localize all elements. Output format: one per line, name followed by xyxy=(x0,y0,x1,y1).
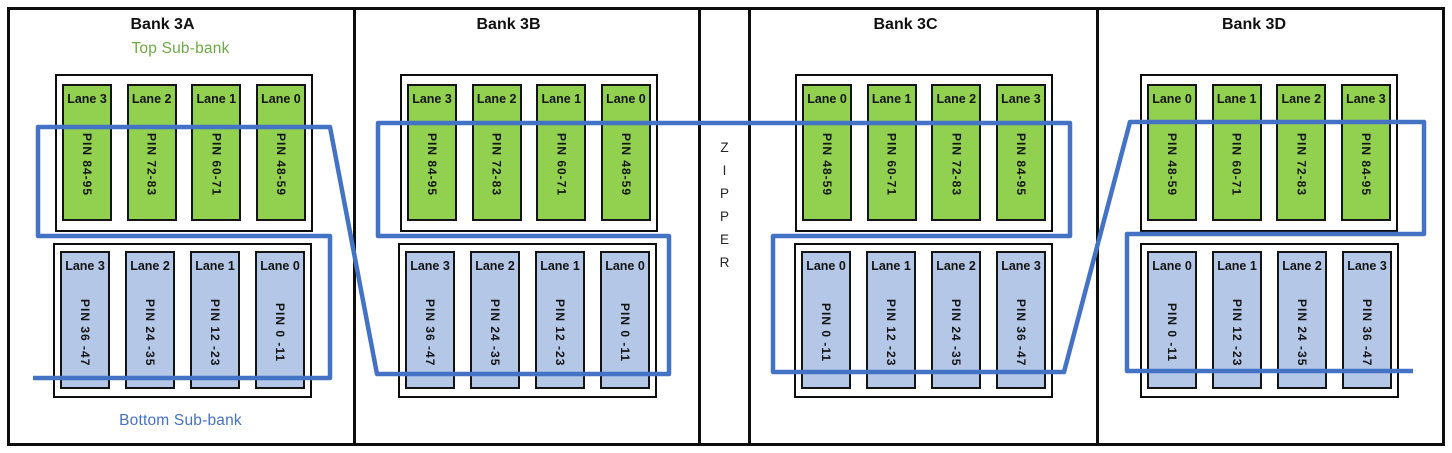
pin-range-wrap: PIN 84-95 xyxy=(409,111,455,219)
pin-range-wrap: PIN 0 -11 xyxy=(602,278,648,387)
lane-box: Lane 3PIN 84-95 xyxy=(407,84,457,221)
bank-3a-title: Bank 3A xyxy=(0,16,335,34)
pin-range-label: PIN 60-71 xyxy=(554,133,568,196)
pin-range-label: PIN 60-71 xyxy=(209,133,223,196)
pin-range-wrap: PIN 24 -35 xyxy=(1279,278,1325,387)
bottom-subbank-label: Bottom Sub-bank xyxy=(8,412,353,430)
bank-3c-bottom-subbank: Lane 0PIN 0 -11Lane 1PIN 12 -23Lane 2PIN… xyxy=(794,243,1053,398)
lane-box: Lane 0PIN 0 -11 xyxy=(600,251,650,389)
pin-range-label: PIN 0 -11 xyxy=(819,303,833,362)
pin-range-wrap: PIN 60-71 xyxy=(538,111,584,219)
pin-range-wrap: PIN 24 -35 xyxy=(933,278,979,387)
pin-range-wrap: PIN 24 -35 xyxy=(472,278,518,387)
lane-label: Lane 0 xyxy=(1149,253,1195,278)
lane-box: Lane 1PIN 12 -23 xyxy=(866,251,916,389)
pin-range-label: PIN 72-83 xyxy=(949,133,963,196)
lane-label: Lane 3 xyxy=(407,253,453,278)
lane-box: Lane 1PIN 60-71 xyxy=(1212,84,1262,221)
pin-range-label: PIN 84-95 xyxy=(1359,133,1373,196)
lane-label: Lane 3 xyxy=(62,253,108,278)
zipper-letter: P xyxy=(720,182,729,205)
lane-box: Lane 3PIN 84-95 xyxy=(62,84,112,221)
pin-range-wrap: PIN 48-59 xyxy=(258,111,304,219)
bank-3b-bottom-subbank: Lane 3PIN 36 -47Lane 2PIN 24 -35Lane 1PI… xyxy=(398,243,657,398)
lane-box: Lane 2PIN 24 -35 xyxy=(470,251,520,389)
pin-range-label: PIN 0 -11 xyxy=(273,303,287,362)
lane-box: Lane 1PIN 12 -23 xyxy=(1212,251,1262,389)
pin-range-label: PIN 36 -47 xyxy=(78,299,92,366)
lane-box: Lane 2PIN 72-83 xyxy=(127,84,177,221)
bank-3c-title: Bank 3C xyxy=(733,16,1078,34)
bank-3d: Bank 3D Lane 0PIN 48-59Lane 1PIN 60-71La… xyxy=(1099,8,1445,445)
lane-label: Lane 1 xyxy=(869,86,915,111)
pin-range-wrap: PIN 72-83 xyxy=(129,111,175,219)
lane-label: Lane 0 xyxy=(803,253,849,278)
pin-range-wrap: PIN 60-71 xyxy=(869,111,915,219)
pin-range-label: PIN 48-59 xyxy=(820,133,834,196)
lane-label: Lane 1 xyxy=(192,253,238,278)
pin-range-wrap: PIN 48-59 xyxy=(603,111,649,219)
pin-range-label: PIN 0 -11 xyxy=(618,303,632,362)
lane-label: Lane 2 xyxy=(127,253,173,278)
pin-range-wrap: PIN 36 -47 xyxy=(62,278,108,387)
pin-range-wrap: PIN 48-59 xyxy=(804,111,850,219)
pin-range-wrap: PIN 0 -11 xyxy=(803,278,849,387)
lane-label: Lane 3 xyxy=(1343,86,1389,111)
lane-label: Lane 2 xyxy=(933,253,979,278)
zipper-letter: R xyxy=(720,251,730,274)
lane-label: Lane 1 xyxy=(1214,86,1260,111)
lane-box: Lane 3PIN 36 -47 xyxy=(996,251,1046,389)
bank-3c: Bank 3C Lane 0PIN 48-59Lane 1PIN 60-71La… xyxy=(751,8,1096,445)
lane-label: Lane 2 xyxy=(129,86,175,111)
pin-range-wrap: PIN 36 -47 xyxy=(407,278,453,387)
pin-range-wrap: PIN 12 -23 xyxy=(1214,278,1260,387)
bank-3c-top-subbank: Lane 0PIN 48-59Lane 1PIN 60-71Lane 2PIN … xyxy=(795,74,1053,232)
lane-label: Lane 0 xyxy=(257,253,303,278)
lane-label: Lane 0 xyxy=(258,86,304,111)
pin-range-label: PIN 24 -35 xyxy=(488,299,502,366)
bank-3a-bottom-subbank: Lane 3PIN 36 -47Lane 2PIN 24 -35Lane 1PI… xyxy=(53,243,312,398)
lane-box: Lane 3PIN 36 -47 xyxy=(1342,251,1392,389)
bank-3b-title: Bank 3B xyxy=(337,16,680,34)
pin-range-wrap: PIN 48-59 xyxy=(1149,111,1195,219)
lane-box: Lane 3PIN 84-95 xyxy=(996,84,1046,221)
pin-range-wrap: PIN 12 -23 xyxy=(537,278,583,387)
pin-range-wrap: PIN 24 -35 xyxy=(127,278,173,387)
pin-range-wrap: PIN 60-71 xyxy=(1214,111,1260,219)
lane-box: Lane 2PIN 24 -35 xyxy=(125,251,175,389)
pin-range-label: PIN 48-59 xyxy=(619,133,633,196)
lane-box: Lane 3PIN 36 -47 xyxy=(405,251,455,389)
pin-range-wrap: PIN 12 -23 xyxy=(192,278,238,387)
bank-3d-bottom-subbank: Lane 0PIN 0 -11Lane 1PIN 12 -23Lane 2PIN… xyxy=(1140,243,1399,398)
lane-box: Lane 1PIN 60-71 xyxy=(867,84,917,221)
pin-range-label: PIN 60-71 xyxy=(885,133,899,196)
lane-label: Lane 2 xyxy=(1279,253,1325,278)
pin-range-label: PIN 24 -35 xyxy=(1295,299,1309,366)
lane-label: Lane 3 xyxy=(998,86,1044,111)
top-subbank-label: Top Sub-bank xyxy=(8,40,353,58)
zipper-column-label: ZIPPER xyxy=(698,136,751,274)
bank-3d-top-subbank: Lane 0PIN 48-59Lane 1PIN 60-71Lane 2PIN … xyxy=(1140,74,1398,232)
lane-box: Lane 2PIN 72-83 xyxy=(472,84,522,221)
zipper-letter: I xyxy=(723,159,727,182)
pin-range-label: PIN 12 -23 xyxy=(1230,299,1244,366)
pin-range-label: PIN 12 -23 xyxy=(884,299,898,366)
pin-range-label: PIN 12 -23 xyxy=(553,299,567,366)
pin-range-wrap: PIN 36 -47 xyxy=(998,278,1044,387)
pin-range-label: PIN 12 -23 xyxy=(208,299,222,366)
pin-range-wrap: PIN 72-83 xyxy=(1278,111,1324,219)
pin-range-label: PIN 60-71 xyxy=(1230,133,1244,196)
pin-range-wrap: PIN 84-95 xyxy=(998,111,1044,219)
pin-range-wrap: PIN 60-71 xyxy=(193,111,239,219)
bank-3d-title: Bank 3D xyxy=(1081,16,1427,34)
pin-range-label: PIN 84-95 xyxy=(1014,133,1028,196)
lane-box: Lane 1PIN 60-71 xyxy=(191,84,241,221)
lane-box: Lane 0PIN 48-59 xyxy=(601,84,651,221)
pin-range-wrap: PIN 0 -11 xyxy=(1149,278,1195,387)
pin-range-label: PIN 24 -35 xyxy=(143,299,157,366)
pin-range-label: PIN 72-83 xyxy=(490,133,504,196)
pin-range-wrap: PIN 84-95 xyxy=(64,111,110,219)
pin-range-wrap: PIN 36 -47 xyxy=(1344,278,1390,387)
lane-label: Lane 0 xyxy=(804,86,850,111)
lane-box: Lane 2PIN 24 -35 xyxy=(931,251,981,389)
lane-box: Lane 0PIN 0 -11 xyxy=(1147,251,1197,389)
lane-label: Lane 2 xyxy=(933,86,979,111)
zipper-letter: Z xyxy=(720,136,728,159)
lane-label: Lane 3 xyxy=(1344,253,1390,278)
pin-range-label: PIN 72-83 xyxy=(145,133,159,196)
bank-3b-top-subbank: Lane 3PIN 84-95Lane 2PIN 72-83Lane 1PIN … xyxy=(400,74,658,232)
pin-range-label: PIN 36 -47 xyxy=(1014,299,1028,366)
pin-range-label: PIN 72-83 xyxy=(1294,133,1308,196)
lane-label: Lane 0 xyxy=(602,253,648,278)
pin-range-label: PIN 48-59 xyxy=(274,133,288,196)
lane-box: Lane 1PIN 12 -23 xyxy=(190,251,240,389)
lane-box: Lane 1PIN 12 -23 xyxy=(535,251,585,389)
pin-range-wrap: PIN 0 -11 xyxy=(257,278,303,387)
pin-range-label: PIN 36 -47 xyxy=(423,299,437,366)
pin-range-wrap: PIN 84-95 xyxy=(1343,111,1389,219)
lane-box: Lane 0PIN 48-59 xyxy=(1147,84,1197,221)
lane-label: Lane 1 xyxy=(537,253,583,278)
bank-3a: Bank 3A Top Sub-bank Lane 3PIN 84-95Lane… xyxy=(8,8,353,445)
lane-label: Lane 0 xyxy=(603,86,649,111)
lane-label: Lane 2 xyxy=(472,253,518,278)
lane-box: Lane 0PIN 0 -11 xyxy=(801,251,851,389)
pin-range-label: PIN 84-95 xyxy=(425,133,439,196)
lane-label: Lane 2 xyxy=(474,86,520,111)
zipper-letter: E xyxy=(720,228,729,251)
lane-box: Lane 2PIN 72-83 xyxy=(1276,84,1326,221)
lane-label: Lane 1 xyxy=(868,253,914,278)
lane-box: Lane 1PIN 60-71 xyxy=(536,84,586,221)
pin-range-label: PIN 84-95 xyxy=(80,133,94,196)
pin-range-wrap: PIN 12 -23 xyxy=(868,278,914,387)
pin-range-wrap: PIN 72-83 xyxy=(474,111,520,219)
bank-zipper-diagram: Bank 3A Top Sub-bank Lane 3PIN 84-95Lane… xyxy=(0,0,1452,453)
lane-box: Lane 3PIN 36 -47 xyxy=(60,251,110,389)
lane-label: Lane 1 xyxy=(1214,253,1260,278)
lane-box: Lane 0PIN 48-59 xyxy=(256,84,306,221)
bank-3b: Bank 3B Lane 3PIN 84-95Lane 2PIN 72-83La… xyxy=(355,8,698,445)
bank-3a-top-subbank: Lane 3PIN 84-95Lane 2PIN 72-83Lane 1PIN … xyxy=(55,74,313,232)
lane-label: Lane 2 xyxy=(1278,86,1324,111)
lane-label: Lane 3 xyxy=(998,253,1044,278)
pin-range-label: PIN 36 -47 xyxy=(1360,299,1374,366)
lane-box: Lane 2PIN 24 -35 xyxy=(1277,251,1327,389)
lane-label: Lane 1 xyxy=(193,86,239,111)
pin-range-label: PIN 24 -35 xyxy=(949,299,963,366)
pin-range-label: PIN 48-59 xyxy=(1165,133,1179,196)
lane-label: Lane 1 xyxy=(538,86,584,111)
lane-box: Lane 2PIN 72-83 xyxy=(931,84,981,221)
lane-label: Lane 3 xyxy=(64,86,110,111)
lane-label: Lane 3 xyxy=(409,86,455,111)
lane-label: Lane 0 xyxy=(1149,86,1195,111)
pin-range-label: PIN 0 -11 xyxy=(1165,303,1179,362)
pin-range-wrap: PIN 72-83 xyxy=(933,111,979,219)
zipper-letter: P xyxy=(720,205,729,228)
lane-box: Lane 0PIN 48-59 xyxy=(802,84,852,221)
lane-box: Lane 0PIN 0 -11 xyxy=(255,251,305,389)
lane-box: Lane 3PIN 84-95 xyxy=(1341,84,1391,221)
